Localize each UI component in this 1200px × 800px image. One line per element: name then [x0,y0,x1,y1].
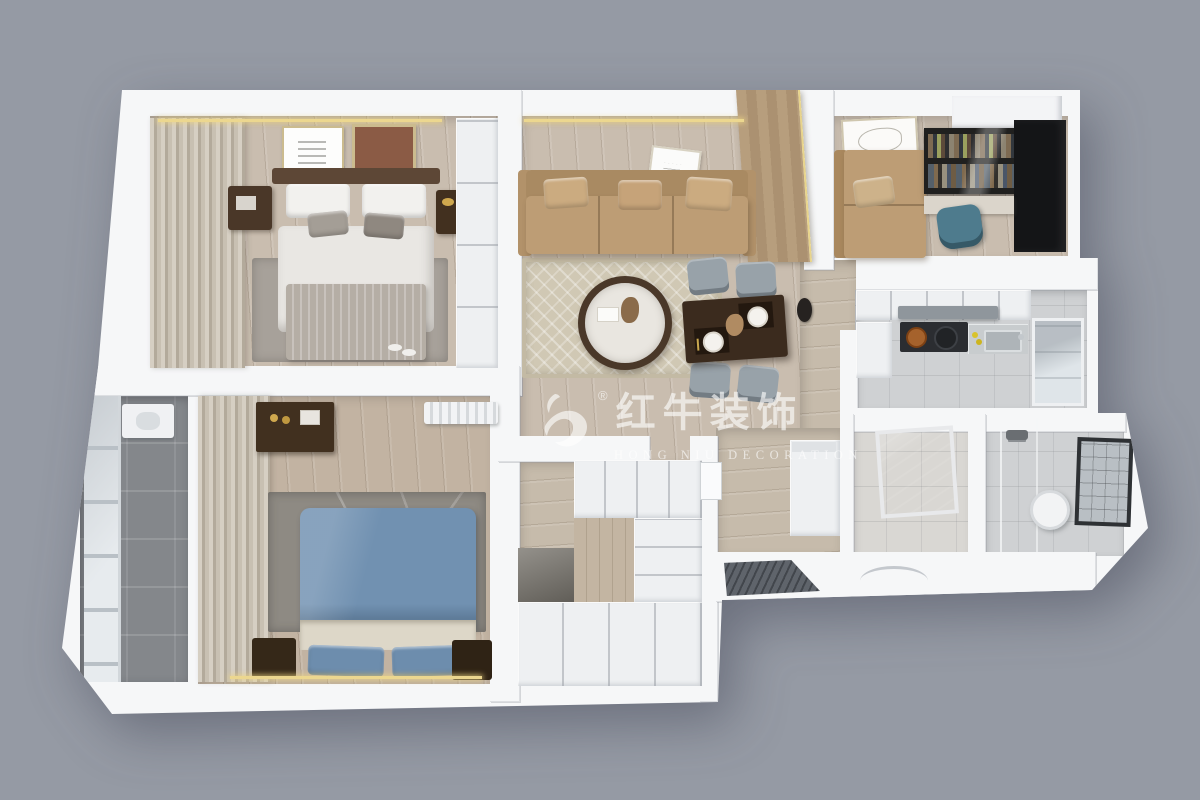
sofa-pillow-3 [685,176,733,211]
master-wardrobe [456,118,498,368]
interior-door [700,462,722,500]
floor-plan-render: ® 红牛装饰 HONG NIU DECORATION [0,0,1200,800]
master-accent-pillow-1 [307,210,349,238]
living-sofa [526,170,748,262]
coffee-table-plant [621,297,639,323]
bedroom2-nightstand-right [452,640,492,680]
master-accent-pillow-2 [363,212,405,239]
faucet [1018,334,1024,340]
nightstand-magazine [236,196,256,210]
slipper-right [402,349,416,356]
dresser-decor-gold-1 [270,414,278,422]
apartment-walls-silhouette [0,0,1200,800]
cloakroom-wardrobe-top [574,460,702,518]
wall-mid-left [78,366,522,396]
coffee-table-book [597,307,619,322]
daybed-pillow [852,175,896,208]
study-office-chair [935,203,984,251]
master-nightstand-left [228,186,272,230]
apartment-plan [0,0,1200,800]
water-heater [1030,490,1070,530]
study-daybed [834,150,926,258]
range-hood [898,306,998,319]
bedroom2-nightstand-left [252,638,296,678]
bathroom-window [1074,437,1133,527]
black-pot [934,326,958,350]
bedroom2-led-strip [230,676,482,679]
bedroom2-bed [300,508,476,680]
nightstand-lamp [442,198,454,206]
table-centerpiece [725,313,744,336]
kitchen-window [1032,318,1084,406]
shower-glass-1 [1000,418,1002,552]
shoe-cabinet-counter [792,442,836,452]
wall-living-cloakroom [498,436,650,462]
dining-chair-1 [686,256,730,296]
dining-table [682,295,788,364]
master-bed [278,168,434,364]
wall-bath-divider [968,414,986,556]
kitchen-sink [984,330,1022,352]
blue-duvet [300,508,476,628]
dresser-decor-gold-2 [282,416,290,424]
wall-bath-left [840,414,854,556]
dining-chair-3 [689,361,731,400]
shower-head [1006,430,1028,440]
bedroom2-dresser [256,402,334,452]
cloakroom-cabinets-bottom [518,602,702,686]
cloakroom-inner-floor [574,518,634,602]
wall-study-kitchen [856,256,1098,290]
kitchen-counter [968,324,1028,354]
wall-clock [797,298,812,322]
entry-shoe-cabinet [790,440,840,536]
lemon-2 [976,339,982,345]
sofa-pillow-1 [543,177,589,210]
poster-text-lines [298,138,326,164]
cloakroom-wardrobe-right [634,518,702,602]
balcony-windows [84,396,121,682]
master-curtains [150,118,245,368]
dresser-photo-frame [300,410,320,425]
sofa-pillow-2 [618,180,662,210]
blue-pillow-1 [307,645,384,678]
dining-chair-2 [735,261,777,299]
coffee-table [578,276,672,370]
radiator [424,402,498,424]
kitchen-tall-cabinet [856,322,892,378]
study-black-wardrobe [1014,120,1066,252]
basin [136,412,160,430]
copper-pot [906,327,927,348]
cooktop [900,322,968,352]
living-led-strip [524,119,744,122]
slipper-left [388,344,402,351]
lemon-1 [972,332,978,338]
balcony-basin-unit [122,404,174,438]
master-headboard [272,168,440,184]
dining-chair-4 [736,364,780,404]
shower-glass-2 [1036,418,1038,552]
utility-dark-window [875,425,959,518]
master-led-strip [158,119,442,122]
